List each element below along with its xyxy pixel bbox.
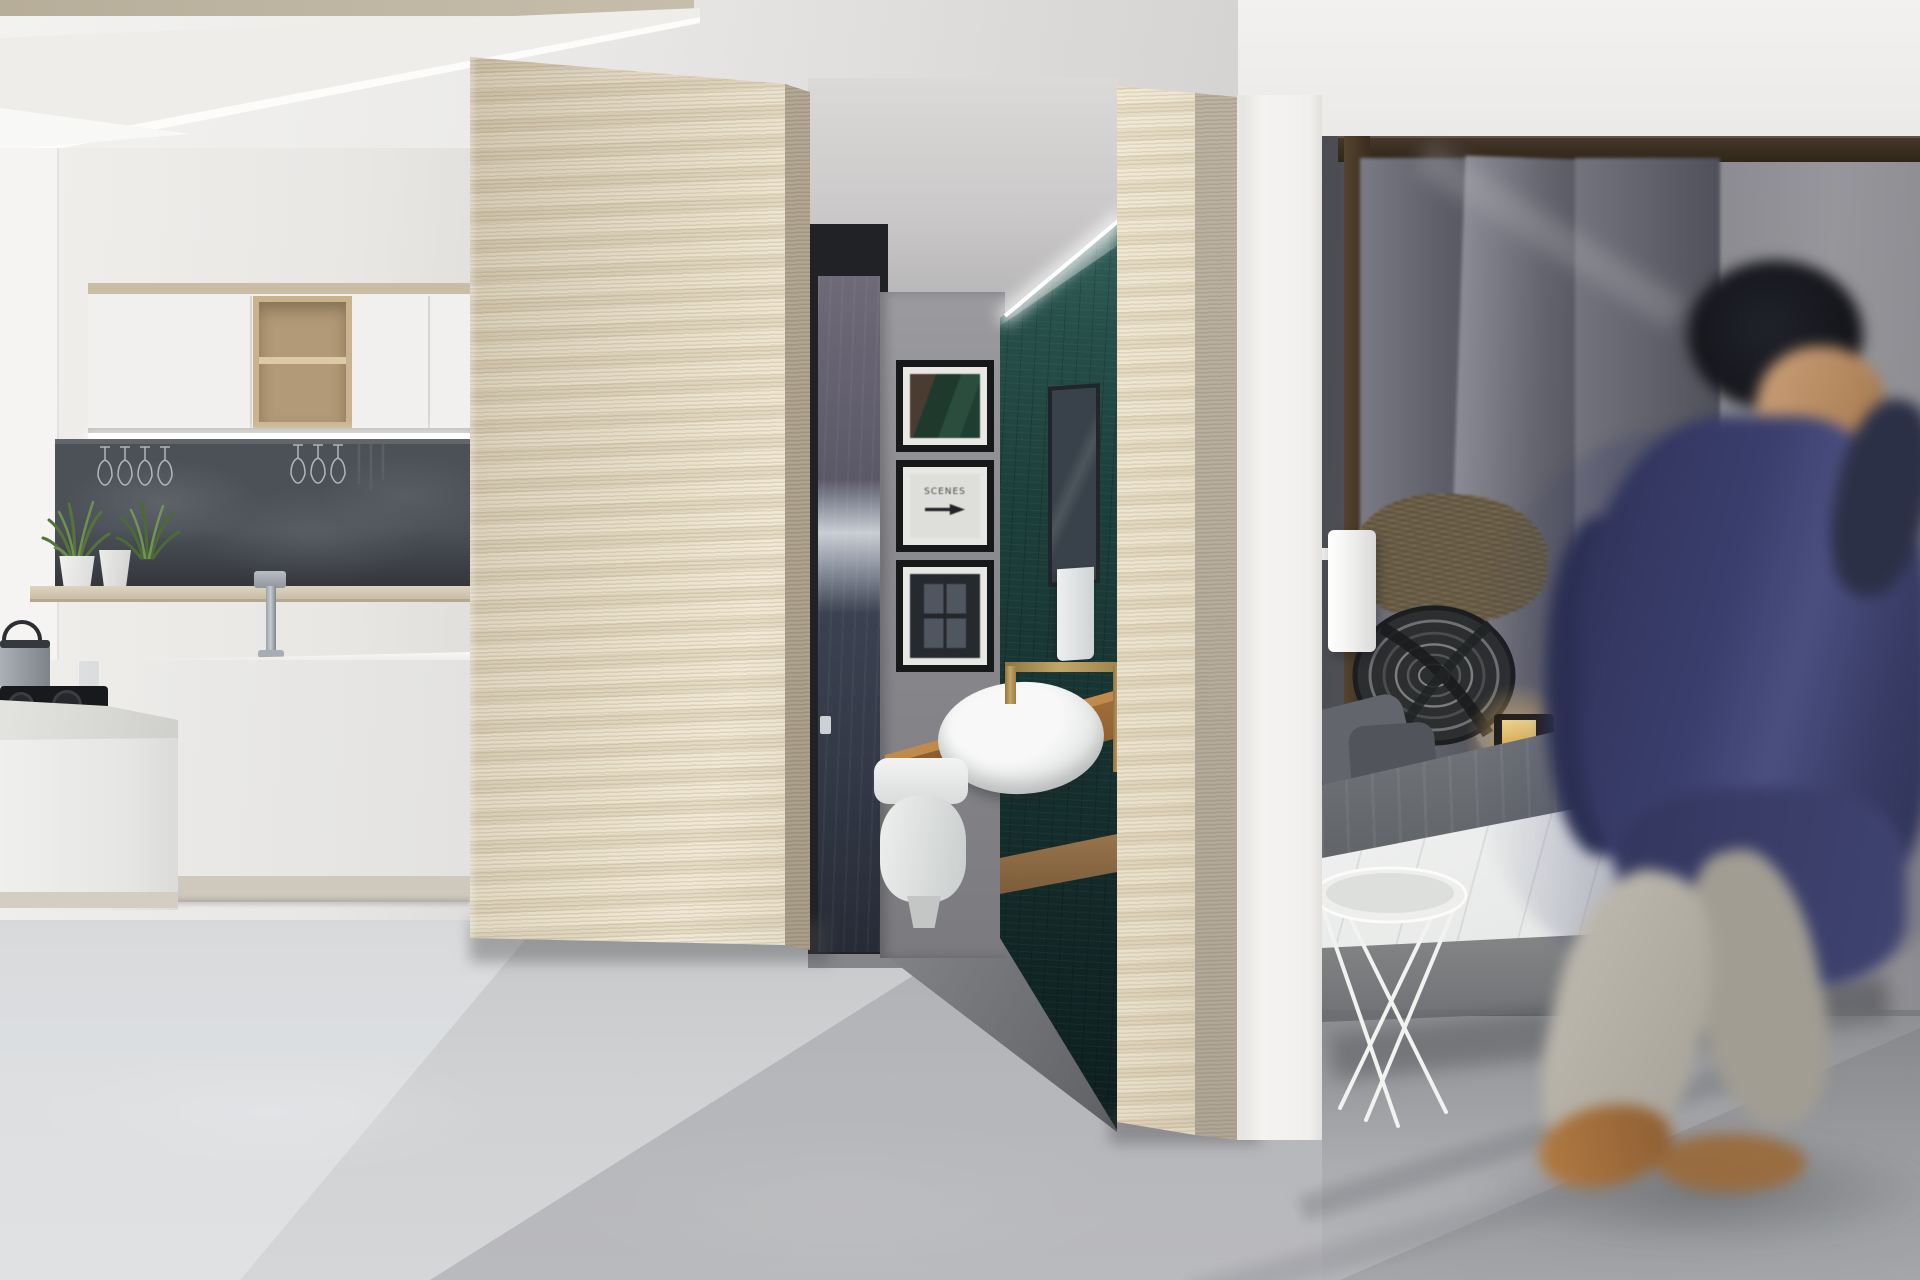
picture-frame-1 — [896, 360, 994, 452]
white-partition-wall — [1237, 95, 1322, 1140]
cylinder-wall-sconce — [1328, 530, 1376, 652]
brass-faucet-bar — [1005, 662, 1127, 672]
island-front — [0, 738, 178, 910]
island-baseboard — [0, 892, 178, 908]
wire-side-table — [1296, 850, 1486, 1140]
open-shelf-divider — [259, 357, 346, 364]
toilet-bowl — [880, 796, 966, 902]
travertine-column-right — [1117, 0, 1195, 1135]
artwork-window-motif — [924, 584, 966, 648]
window-ledge — [30, 586, 470, 602]
bathroom-mirror — [1048, 383, 1100, 587]
brass-faucet-spout — [1005, 666, 1016, 704]
frame-mat — [903, 567, 987, 665]
glass-door-reflection — [818, 276, 880, 952]
cabinet-seam — [428, 296, 430, 430]
hanging-stemware-right — [287, 442, 399, 506]
glass-tumbler — [78, 660, 100, 688]
travertine-column-left — [470, 0, 785, 945]
kitchen-faucet — [266, 586, 276, 654]
hand-towel — [1057, 567, 1094, 662]
kitchen-lower-cabinets — [145, 660, 470, 878]
picture-frame-2: SCENES — [896, 460, 994, 552]
framed-art-landscape — [910, 374, 980, 438]
apartment-render: SCENES — [0, 0, 1920, 1280]
travertine-column-right-side — [1195, 0, 1237, 1140]
door-handle — [820, 716, 831, 734]
bedroom-ceiling — [1238, 0, 1920, 152]
pot-lid — [0, 640, 50, 648]
arrow-graphic-icon — [925, 504, 965, 515]
frame-mat — [903, 367, 987, 445]
artwork-text: SCENES — [910, 474, 980, 497]
framed-art-typographic: SCENES — [910, 474, 980, 538]
cabinet-seam — [250, 296, 252, 430]
picture-frame-3 — [896, 560, 994, 672]
framed-art-window — [910, 574, 980, 658]
person-rear-shoe — [1656, 1134, 1806, 1192]
travertine-column-left-side — [785, 0, 810, 950]
frame-mat: SCENES — [903, 467, 987, 545]
walking-person — [1538, 248, 1920, 1260]
